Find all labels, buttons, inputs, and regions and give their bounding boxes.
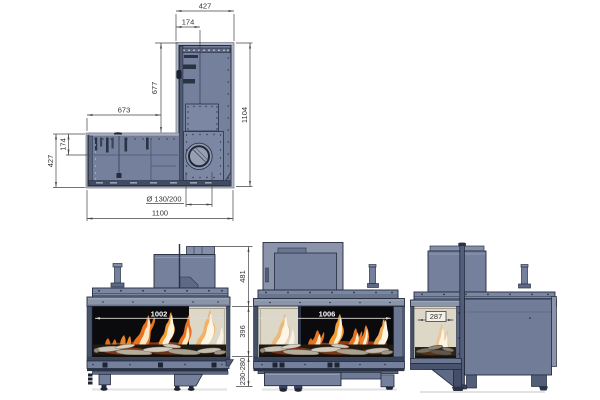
svg-text:174: 174	[182, 18, 195, 27]
svg-text:174: 174	[59, 138, 68, 151]
svg-text:1006: 1006	[319, 310, 336, 319]
svg-text:230-280: 230-280	[238, 358, 247, 386]
svg-text:427: 427	[199, 2, 212, 11]
svg-text:1100: 1100	[152, 209, 168, 218]
svg-text:396: 396	[238, 325, 247, 338]
svg-text:287: 287	[430, 312, 443, 321]
svg-text:Ø 130/200: Ø 130/200	[146, 195, 181, 204]
svg-text:481: 481	[238, 270, 247, 283]
svg-text:677: 677	[150, 82, 159, 95]
svg-text:1104: 1104	[240, 107, 249, 123]
svg-text:673: 673	[118, 106, 131, 115]
svg-text:427: 427	[46, 155, 55, 168]
svg-text:1002: 1002	[151, 310, 168, 319]
